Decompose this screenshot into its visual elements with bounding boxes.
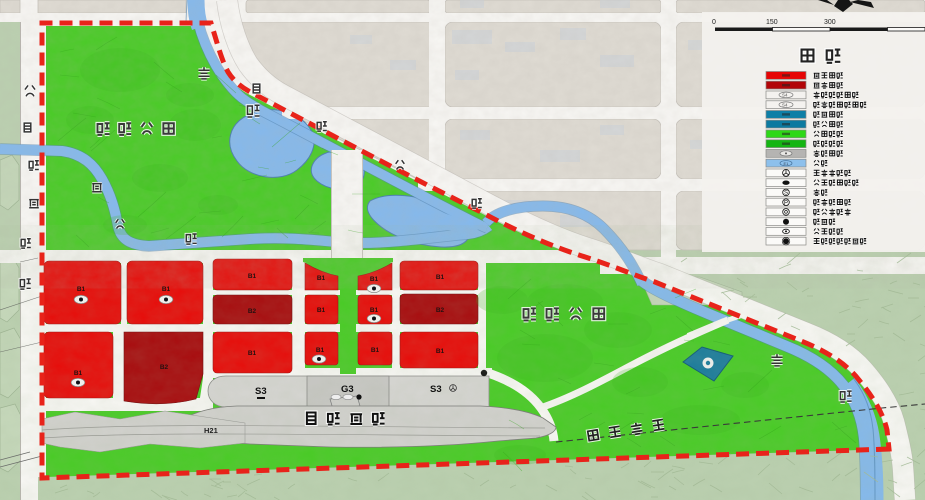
svg-text:B2: B2 [248, 308, 257, 315]
svg-text:B2: B2 [160, 364, 169, 371]
svg-text:S4: S4 [782, 103, 788, 108]
svg-text:S3: S3 [255, 386, 267, 397]
svg-text:B1: B1 [436, 348, 445, 355]
svg-text:B1: B1 [436, 274, 445, 281]
svg-text:B1: B1 [317, 307, 326, 314]
svg-text:B1: B1 [74, 370, 83, 377]
svg-text:B1: B1 [370, 276, 379, 283]
svg-text:P: P [784, 200, 788, 206]
svg-text:B1: B1 [317, 275, 326, 282]
svg-text:B2: B2 [436, 307, 445, 314]
svg-text:E1: E1 [784, 161, 790, 166]
svg-text:B1: B1 [162, 286, 171, 293]
svg-text:B1: B1 [77, 286, 86, 293]
svg-text:B1: B1 [371, 347, 380, 354]
svg-text:H21: H21 [204, 426, 218, 435]
svg-text:B1: B1 [370, 307, 379, 314]
svg-text:B1: B1 [248, 350, 257, 357]
svg-text:S: S [784, 191, 788, 197]
svg-text:B1: B1 [316, 347, 325, 354]
svg-text:300: 300 [824, 19, 836, 26]
svg-text:0: 0 [712, 19, 716, 26]
svg-text:150: 150 [766, 19, 778, 26]
svg-text:G3: G3 [341, 384, 354, 395]
svg-text:S4: S4 [782, 93, 788, 98]
svg-text:S3: S3 [430, 384, 442, 395]
svg-text:B1: B1 [248, 273, 257, 280]
